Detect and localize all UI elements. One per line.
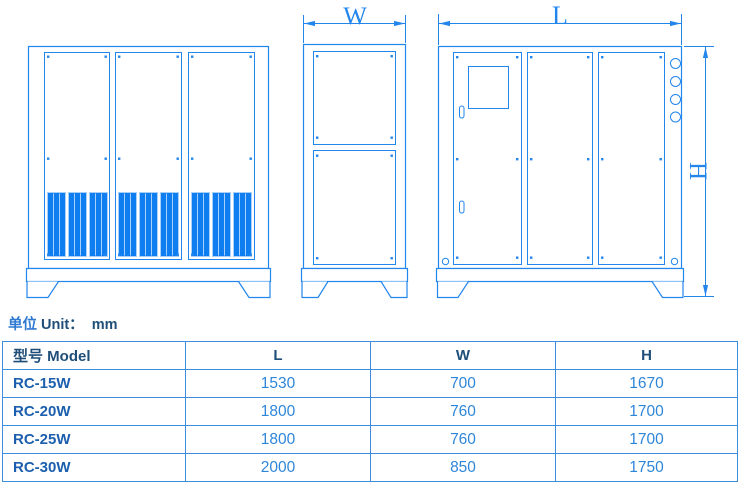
spec-sheet: W <box>0 0 740 484</box>
header-l: L <box>186 342 371 370</box>
model-cell: RC-20W <box>3 398 186 426</box>
w-value-cell: 850 <box>371 454 556 482</box>
end-base-rail <box>437 269 684 282</box>
unit-note: 单位Unit：mm <box>8 315 117 335</box>
end-view <box>437 47 684 298</box>
header-h: H <box>556 342 738 370</box>
side-left-foot <box>302 282 328 298</box>
end-right-foot <box>652 282 683 298</box>
l-value-cell: 1530 <box>186 370 371 398</box>
l-value-cell: 1800 <box>186 398 371 426</box>
table-row: RC-30W 2000 850 1750 <box>3 454 738 482</box>
front-left-foot <box>27 282 59 298</box>
technical-drawing: W <box>0 0 740 312</box>
model-cell: RC-25W <box>3 426 186 454</box>
side-right-foot <box>381 282 407 298</box>
table-row: RC-25W 1800 760 1700 <box>3 426 738 454</box>
h-value-cell: 1750 <box>556 454 738 482</box>
chiller-dimension-drawing: W <box>0 0 740 312</box>
l-arrowhead-left <box>439 21 450 26</box>
front-base-rail <box>27 269 271 282</box>
l-value-cell: 2000 <box>186 454 371 482</box>
length-dimension: L <box>439 1 682 45</box>
l-arrowhead-right <box>670 21 681 26</box>
height-label: H <box>684 162 711 180</box>
dimension-table: 型号 Model L W H RC-15W 1530 700 1670 RC-2… <box>2 341 738 482</box>
side-cabinet-body <box>304 45 406 269</box>
front-right-foot <box>239 282 271 298</box>
vent-grilles <box>48 193 252 257</box>
header-w: W <box>371 342 556 370</box>
width-label: W <box>343 3 367 30</box>
unit-note-cn: 单位 <box>8 317 37 333</box>
h-value-cell: 1700 <box>556 398 738 426</box>
table-row: RC-20W 1800 760 1700 <box>3 398 738 426</box>
h-value-cell: 1670 <box>556 370 738 398</box>
side-view <box>302 45 408 298</box>
model-cell: RC-15W <box>3 370 186 398</box>
length-label: L <box>552 1 568 30</box>
side-base-rail <box>302 269 408 282</box>
w-value-cell: 760 <box>371 398 556 426</box>
header-model: 型号 Model <box>3 342 186 370</box>
w-arrowhead-left <box>304 21 315 26</box>
unit-note-value: mm <box>92 317 118 333</box>
h-arrowhead-bottom <box>703 285 708 296</box>
h-arrowhead-top <box>703 47 708 58</box>
unit-note-en: Unit： <box>41 317 84 333</box>
model-cell: RC-30W <box>3 454 186 482</box>
table-row: RC-15W 1530 700 1670 <box>3 370 738 398</box>
h-value-cell: 1700 <box>556 426 738 454</box>
end-left-foot <box>438 282 469 298</box>
w-arrowhead-right <box>394 21 405 26</box>
w-value-cell: 760 <box>371 426 556 454</box>
end-cabinet-body <box>439 47 682 269</box>
table-header-row: 型号 Model L W H <box>3 342 738 370</box>
w-value-cell: 700 <box>371 370 556 398</box>
front-view <box>27 47 271 298</box>
width-dimension: W <box>304 3 406 43</box>
l-value-cell: 1800 <box>186 426 371 454</box>
height-dimension: H <box>684 47 714 297</box>
